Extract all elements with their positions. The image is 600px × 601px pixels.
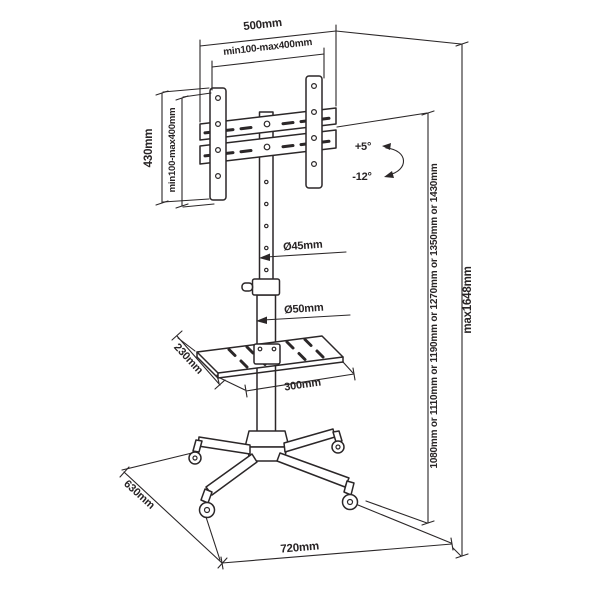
dimension-base-width: 720mm	[221, 505, 453, 569]
label-shelf-width: 300mm	[283, 376, 322, 393]
dim-extension	[337, 113, 427, 127]
vesa-hole	[216, 96, 221, 101]
label-height-options: 1080mm or 1110mm or 1190mm or 1270mm or …	[429, 163, 440, 468]
center-screw	[264, 144, 270, 150]
clamp-screw	[272, 347, 276, 351]
caster-hub	[193, 456, 197, 460]
vesa-rail-left	[210, 88, 226, 200]
crossbar-slot	[283, 123, 293, 124]
dim-extension	[220, 378, 245, 390]
dim-extension	[163, 199, 209, 202]
label-bracket-height: 430mm	[143, 129, 155, 168]
tilt-arc	[386, 148, 404, 175]
label-base-width: 720mm	[280, 540, 320, 555]
label-bracket-width: 500mm	[243, 17, 283, 33]
tilt-annotation: +5° -12°	[352, 141, 403, 183]
label-lower-pole-diameter: Ø50mm	[284, 302, 325, 317]
leg-front-right	[277, 453, 349, 487]
tilt-arrow-up	[382, 143, 391, 150]
dimension-max-height: max1648mm	[336, 31, 474, 558]
vesa-hole	[216, 122, 221, 127]
vesa-hole	[312, 136, 317, 141]
dim-extension	[122, 453, 192, 470]
center-screw	[264, 121, 270, 127]
crossbar-slot	[241, 128, 251, 129]
label-tilt-down: -12°	[352, 171, 372, 183]
label-tilt-up: +5°	[355, 141, 371, 153]
vesa-hole	[312, 162, 317, 167]
crossbar-slot	[241, 151, 251, 152]
dim-extension	[453, 548, 461, 556]
dim-extension	[183, 93, 211, 97]
label-upper-pole-diameter: Ø45mm	[283, 239, 324, 254]
vesa-hole	[216, 148, 221, 153]
clamp-screw	[258, 347, 262, 351]
pole-hole	[265, 246, 268, 249]
vesa-rail-right	[306, 76, 322, 188]
label-vesa-height: min100-max400mm	[167, 108, 178, 193]
lock-knob	[242, 283, 253, 291]
dim-extension	[163, 88, 209, 92]
label-max-height: max1648mm	[462, 266, 474, 333]
vesa-hole	[312, 110, 317, 115]
caster-hub	[205, 508, 210, 513]
label-vesa-width: min100-max400mm	[223, 37, 313, 58]
caster-mount	[193, 440, 202, 452]
pole-hole	[265, 202, 268, 205]
tv-stand-dimension-diagram: 500mm min100-max400mm 430mm min100-max40…	[0, 0, 600, 601]
base-hub	[245, 431, 289, 447]
leg-back-right	[284, 429, 335, 452]
pole	[242, 112, 280, 445]
diagram-canvas: 500mm min100-max400mm 430mm min100-max40…	[0, 0, 600, 601]
dim-extension	[358, 505, 451, 543]
caster-hub	[336, 445, 340, 449]
label-shelf-depth: 230mm	[171, 341, 205, 376]
dim-extension	[343, 362, 353, 373]
caster-hub	[348, 500, 353, 505]
shelf	[197, 336, 343, 378]
pole-hole	[265, 180, 268, 183]
caster-mount	[201, 489, 212, 503]
shelf-clamp	[254, 344, 280, 364]
vesa-hole	[312, 84, 317, 89]
vesa-hole	[216, 174, 221, 179]
dim-line	[222, 544, 452, 563]
height-lock-collar	[253, 279, 280, 295]
dim-extension	[336, 31, 461, 44]
pole-hole	[265, 268, 268, 271]
crossbar-slot	[283, 146, 293, 147]
base	[189, 429, 358, 518]
pole-hole	[265, 224, 268, 227]
label-base-depth: 630mm	[121, 478, 157, 512]
dim-line	[266, 252, 346, 257]
tilt-arrow-down	[384, 171, 394, 178]
leg-front-left	[206, 454, 257, 495]
leg-back-left	[198, 437, 250, 454]
dim-tick	[172, 331, 182, 340]
dim-extension	[206, 517, 220, 560]
